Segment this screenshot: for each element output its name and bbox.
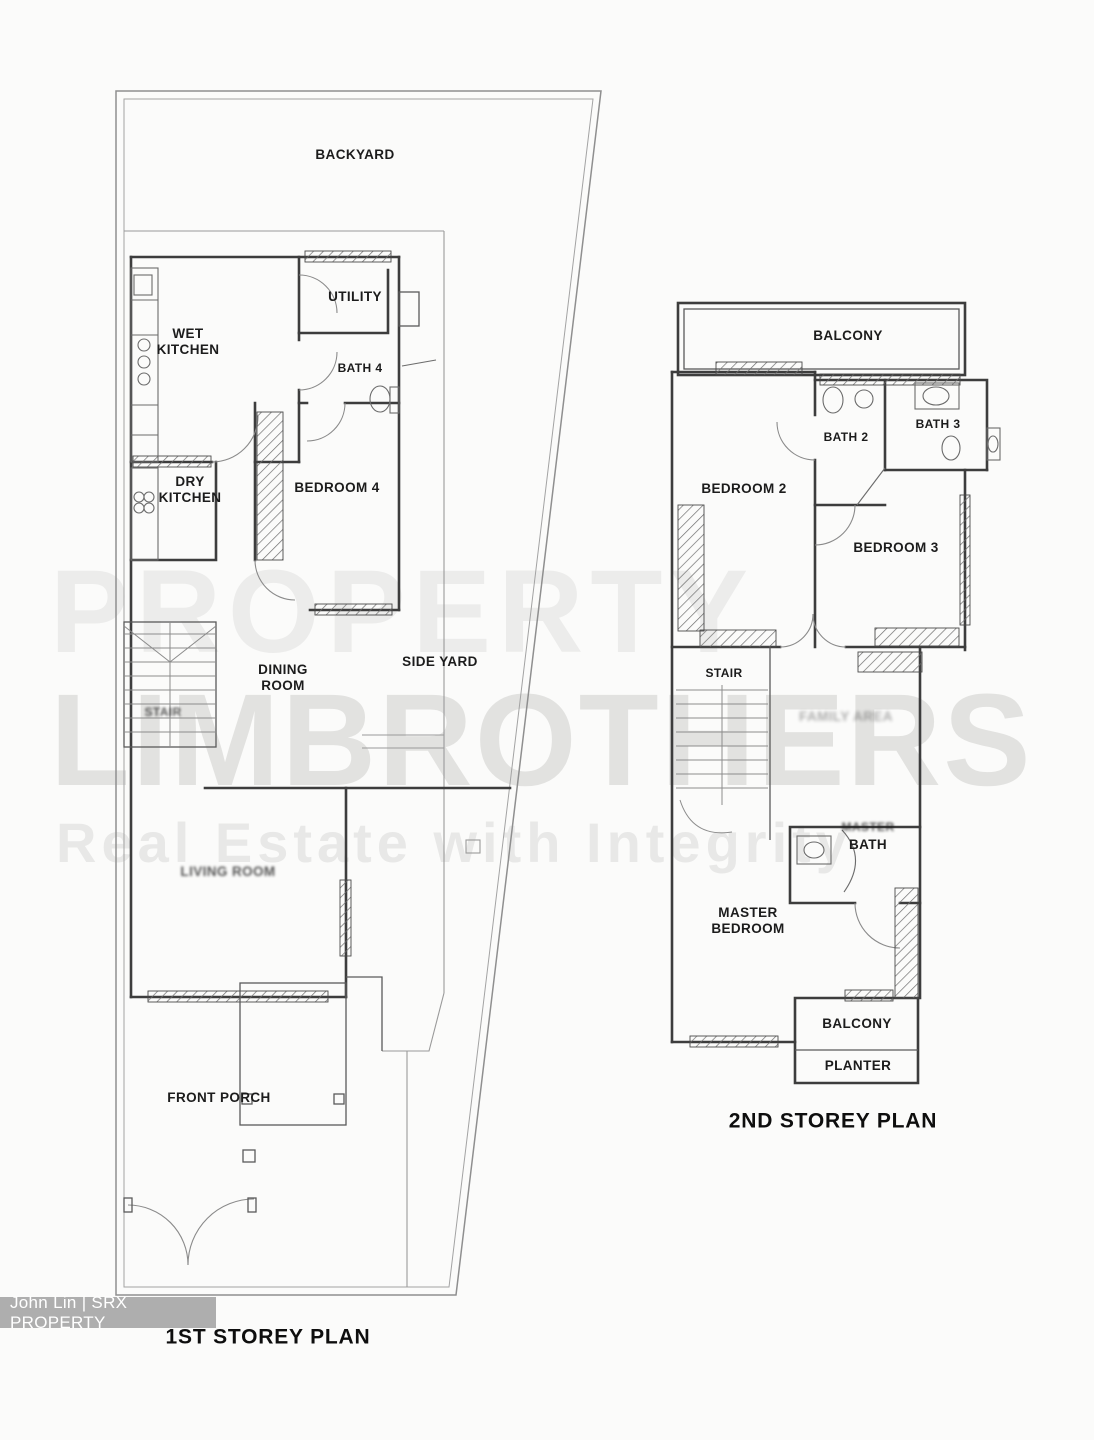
first-storey-fixtures (131, 268, 436, 560)
first-storey-windows (133, 251, 392, 1002)
second-storey-doors (777, 422, 900, 948)
credit-text: John Lin | SRX PROPERTY (10, 1293, 216, 1333)
floorplan-drawing (0, 0, 1094, 1440)
bath4-leader-line (402, 360, 436, 366)
first-storey-stair (124, 622, 216, 747)
bath3-toilet (942, 436, 960, 460)
credit-bar: John Lin | SRX PROPERTY (0, 1297, 216, 1328)
first-storey-lot-boundary (116, 91, 601, 1295)
bath2-sink (855, 390, 873, 408)
balcony-door-strip (716, 362, 802, 375)
master-bath-shower (842, 830, 856, 892)
bath2-toilet (823, 387, 843, 413)
second-storey-walls (672, 303, 987, 1083)
floorplan-page: PROPERTY LIMBROTHERS Real Estate with In… (0, 0, 1094, 1440)
bedroom4-wardrobe (257, 412, 283, 560)
bedroom2-wardrobe (678, 505, 704, 631)
master-bath-sink (804, 842, 824, 858)
bath3-sink (923, 387, 949, 405)
first-storey-doors (124, 275, 345, 1265)
bath4-toilet (370, 386, 390, 412)
second-storey-stair (676, 685, 768, 833)
first-storey-walls (131, 257, 510, 1051)
first-storey-porch (240, 983, 346, 1162)
master-wardrobe (895, 888, 918, 998)
